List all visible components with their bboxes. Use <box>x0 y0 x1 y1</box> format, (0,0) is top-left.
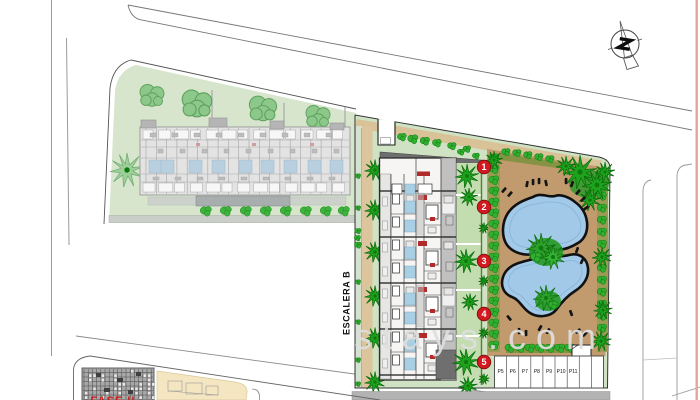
svg-text:P10: P10 <box>557 369 566 375</box>
svg-text:FASE II: FASE II <box>91 395 136 400</box>
svg-text:P9: P9 <box>546 369 552 375</box>
svg-text:2: 2 <box>481 202 486 212</box>
svg-text:P6: P6 <box>510 369 516 375</box>
svg-text:P8: P8 <box>534 369 540 375</box>
svg-text:ESCALERA B: ESCALERA B <box>342 271 352 335</box>
svg-text:3: 3 <box>481 256 486 266</box>
svg-text:P7: P7 <box>522 369 528 375</box>
svg-text:1: 1 <box>481 162 486 172</box>
svg-text:stays.com: stays.com <box>354 316 606 357</box>
svg-text:5: 5 <box>481 357 486 367</box>
svg-text:P5: P5 <box>498 369 504 375</box>
svg-text:P11: P11 <box>569 369 578 375</box>
